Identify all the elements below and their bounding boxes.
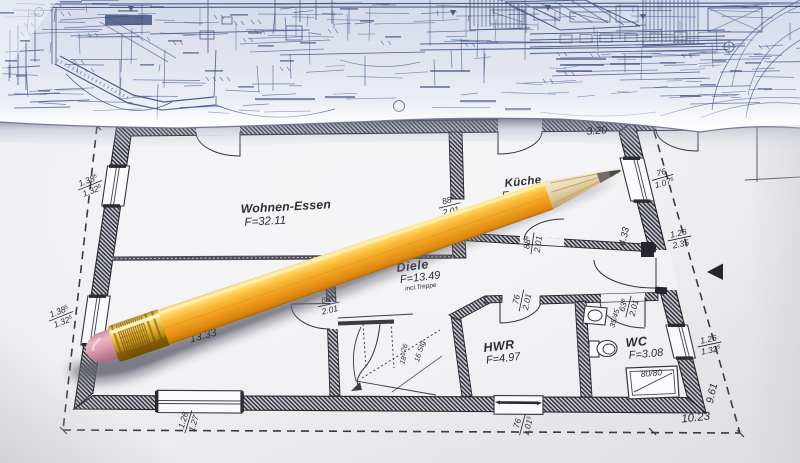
svg-text:F=32.11: F=32.11 xyxy=(244,215,286,229)
